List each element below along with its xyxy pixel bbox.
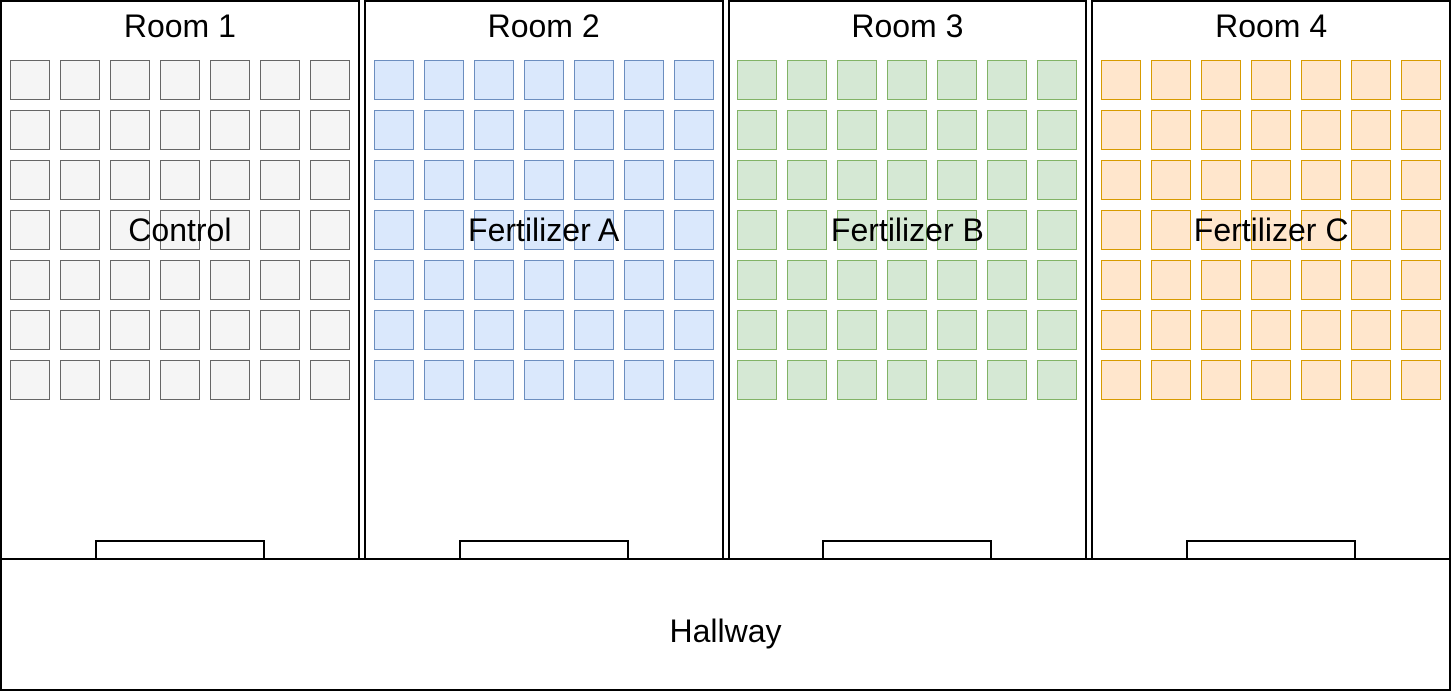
- plant-pot: [1301, 60, 1341, 100]
- plant-pot: [574, 310, 614, 350]
- plant-pot: [310, 160, 350, 200]
- plant-pot: [837, 260, 877, 300]
- plant-pot: [1401, 160, 1441, 200]
- room-title: Room 1: [2, 8, 358, 45]
- plant-pot: [374, 60, 414, 100]
- plant-pot: [1037, 110, 1077, 150]
- plant-pot: [1201, 310, 1241, 350]
- plant-pot: [987, 110, 1027, 150]
- plant-pot: [574, 160, 614, 200]
- plant-pot: [160, 60, 200, 100]
- plant-pot: [887, 110, 927, 150]
- room-4: Room 4 Fertilizer C: [1091, 0, 1451, 560]
- plant-pot: [1151, 310, 1191, 350]
- plant-pot: [937, 60, 977, 100]
- plant-pot: [1201, 60, 1241, 100]
- plant-pot: [160, 260, 200, 300]
- plant-pot: [787, 260, 827, 300]
- plant-pot: [210, 160, 250, 200]
- floor-plan: Room 1 Control Room 2 Fertilizer A Room …: [0, 0, 1451, 691]
- plant-pot: [1251, 310, 1291, 350]
- plant-pot: [574, 60, 614, 100]
- plant-pot: [424, 60, 464, 100]
- plant-pot: [424, 260, 464, 300]
- plant-pot: [1101, 310, 1141, 350]
- plant-pot: [1301, 110, 1341, 150]
- room-title: Room 2: [366, 8, 722, 45]
- plant-pot: [737, 310, 777, 350]
- plant-pot: [524, 360, 564, 400]
- plant-pot: [10, 110, 50, 150]
- plant-pot: [624, 160, 664, 200]
- plant-pot: [110, 160, 150, 200]
- plant-pot: [574, 110, 614, 150]
- plant-pot: [524, 260, 564, 300]
- plant-pot: [310, 110, 350, 150]
- plant-pot: [1351, 360, 1391, 400]
- plant-pot: [1401, 310, 1441, 350]
- plant-pot: [937, 110, 977, 150]
- treatment-label: Control: [2, 210, 358, 250]
- plant-pot: [260, 60, 300, 100]
- plant-pot: [260, 160, 300, 200]
- plant-pot: [624, 360, 664, 400]
- plant-pot: [160, 110, 200, 150]
- plant-pot: [1301, 160, 1341, 200]
- room-2: Room 2 Fertilizer A: [364, 0, 724, 560]
- plant-pot: [1251, 160, 1291, 200]
- plant-pot: [674, 360, 714, 400]
- plant-pot: [260, 310, 300, 350]
- plant-pot: [110, 60, 150, 100]
- treatment-label: Fertilizer C: [1093, 210, 1449, 250]
- plant-pot: [1351, 110, 1391, 150]
- plant-pot: [210, 260, 250, 300]
- plant-pot: [60, 110, 100, 150]
- plant-pot: [1151, 110, 1191, 150]
- plant-pot: [937, 260, 977, 300]
- plant-pot: [524, 110, 564, 150]
- plant-pot: [837, 160, 877, 200]
- plant-pot: [474, 260, 514, 300]
- plant-pot: [160, 310, 200, 350]
- plant-pot: [987, 360, 1027, 400]
- plant-pot: [787, 360, 827, 400]
- plant-pot: [310, 310, 350, 350]
- plant-pot: [1037, 160, 1077, 200]
- plant-pot: [624, 110, 664, 150]
- plant-pot: [1037, 260, 1077, 300]
- plant-pot: [474, 160, 514, 200]
- plant-pot: [1201, 160, 1241, 200]
- plant-pot: [10, 310, 50, 350]
- door: [1186, 540, 1356, 558]
- plant-pot: [887, 310, 927, 350]
- treatment-label: Fertilizer A: [366, 210, 722, 250]
- plant-pot: [674, 260, 714, 300]
- plant-pot: [937, 310, 977, 350]
- plant-pot: [60, 60, 100, 100]
- plant-pot: [1401, 360, 1441, 400]
- plant-pot: [624, 310, 664, 350]
- plant-pot: [10, 60, 50, 100]
- rooms-row: Room 1 Control Room 2 Fertilizer A Room …: [0, 0, 1451, 560]
- plant-pot: [524, 160, 564, 200]
- plant-pot: [374, 310, 414, 350]
- plant-pot: [60, 260, 100, 300]
- plant-pot: [474, 360, 514, 400]
- plant-pot: [524, 60, 564, 100]
- plant-pot: [1101, 160, 1141, 200]
- plant-pot: [737, 260, 777, 300]
- plant-pot: [10, 360, 50, 400]
- plant-pot: [787, 310, 827, 350]
- door: [95, 540, 265, 558]
- plant-pot: [1151, 60, 1191, 100]
- plant-pot: [987, 160, 1027, 200]
- plant-pot: [60, 310, 100, 350]
- plant-pot: [987, 260, 1027, 300]
- plant-pot: [737, 110, 777, 150]
- plant-pot: [160, 160, 200, 200]
- plant-pot: [310, 60, 350, 100]
- plant-pot: [1201, 360, 1241, 400]
- plant-pot: [1401, 60, 1441, 100]
- plant-pot: [1351, 60, 1391, 100]
- plant-pot: [160, 360, 200, 400]
- plant-pot: [60, 160, 100, 200]
- plant-pot: [1351, 260, 1391, 300]
- plant-pot: [1301, 310, 1341, 350]
- plant-pot: [1201, 260, 1241, 300]
- plant-pot: [887, 160, 927, 200]
- plant-pot: [674, 310, 714, 350]
- plant-pot: [1037, 360, 1077, 400]
- plant-pot: [674, 160, 714, 200]
- plant-pot: [524, 310, 564, 350]
- plant-pot: [210, 360, 250, 400]
- plant-pot: [1101, 110, 1141, 150]
- plant-pot: [260, 110, 300, 150]
- plant-pot: [474, 110, 514, 150]
- plant-pot: [1151, 160, 1191, 200]
- plant-pot: [787, 60, 827, 100]
- plant-pot: [310, 360, 350, 400]
- room-title: Room 3: [730, 8, 1086, 45]
- plant-pot: [887, 60, 927, 100]
- plant-pot: [574, 260, 614, 300]
- plant-pot: [110, 260, 150, 300]
- plant-pot: [110, 360, 150, 400]
- plant-pot: [424, 160, 464, 200]
- plant-pot: [1151, 260, 1191, 300]
- plant-pot: [424, 310, 464, 350]
- plant-pot: [1401, 110, 1441, 150]
- plant-pot: [210, 110, 250, 150]
- plant-pot: [1101, 60, 1141, 100]
- plant-pot: [987, 60, 1027, 100]
- plant-pot: [987, 310, 1027, 350]
- plant-pot: [210, 60, 250, 100]
- plant-pot: [837, 60, 877, 100]
- plant-pot: [1151, 360, 1191, 400]
- plant-pot: [1401, 260, 1441, 300]
- plant-pot: [787, 110, 827, 150]
- plant-pot: [1351, 310, 1391, 350]
- plant-pot: [737, 160, 777, 200]
- room-title: Room 4: [1093, 8, 1449, 45]
- plant-pot: [474, 60, 514, 100]
- plant-pot: [210, 310, 250, 350]
- plant-pot: [1251, 360, 1291, 400]
- plant-pot: [474, 310, 514, 350]
- plant-pot: [1351, 160, 1391, 200]
- plant-pot: [1037, 310, 1077, 350]
- plant-pot: [374, 260, 414, 300]
- plant-pot: [1301, 260, 1341, 300]
- plant-pot: [674, 110, 714, 150]
- door: [459, 540, 629, 558]
- plant-pot: [1101, 360, 1141, 400]
- hallway-label: Hallway: [669, 613, 781, 650]
- plant-pot: [737, 360, 777, 400]
- plant-pot: [887, 360, 927, 400]
- plant-pot: [1251, 260, 1291, 300]
- plant-pot: [1201, 110, 1241, 150]
- plant-pot: [937, 360, 977, 400]
- plant-pot: [674, 60, 714, 100]
- plant-pot: [787, 160, 827, 200]
- plant-pot: [737, 60, 777, 100]
- plant-pot: [837, 360, 877, 400]
- plant-pot: [1101, 260, 1141, 300]
- plant-pot: [60, 360, 100, 400]
- plant-pot: [110, 110, 150, 150]
- plant-pot: [937, 160, 977, 200]
- plant-pot: [624, 260, 664, 300]
- plant-pot: [374, 160, 414, 200]
- plant-pot: [1301, 360, 1341, 400]
- plant-pot: [10, 260, 50, 300]
- hallway: Hallway: [0, 558, 1451, 691]
- plant-pot: [574, 360, 614, 400]
- plant-pot: [110, 310, 150, 350]
- plant-pot: [624, 60, 664, 100]
- plant-pot: [260, 260, 300, 300]
- plant-pot: [837, 110, 877, 150]
- plant-pot: [374, 360, 414, 400]
- plant-pot: [887, 260, 927, 300]
- plant-pot: [1037, 60, 1077, 100]
- treatment-label: Fertilizer B: [730, 210, 1086, 250]
- plant-pot: [1251, 110, 1291, 150]
- plant-pot: [424, 110, 464, 150]
- room-3: Room 3 Fertilizer B: [728, 0, 1088, 560]
- room-1: Room 1 Control: [0, 0, 360, 560]
- plant-pot: [424, 360, 464, 400]
- door: [822, 540, 992, 558]
- plant-pot: [837, 310, 877, 350]
- plant-pot: [1251, 60, 1291, 100]
- plant-pot: [374, 110, 414, 150]
- plant-pot: [260, 360, 300, 400]
- plant-pot: [310, 260, 350, 300]
- plant-pot: [10, 160, 50, 200]
